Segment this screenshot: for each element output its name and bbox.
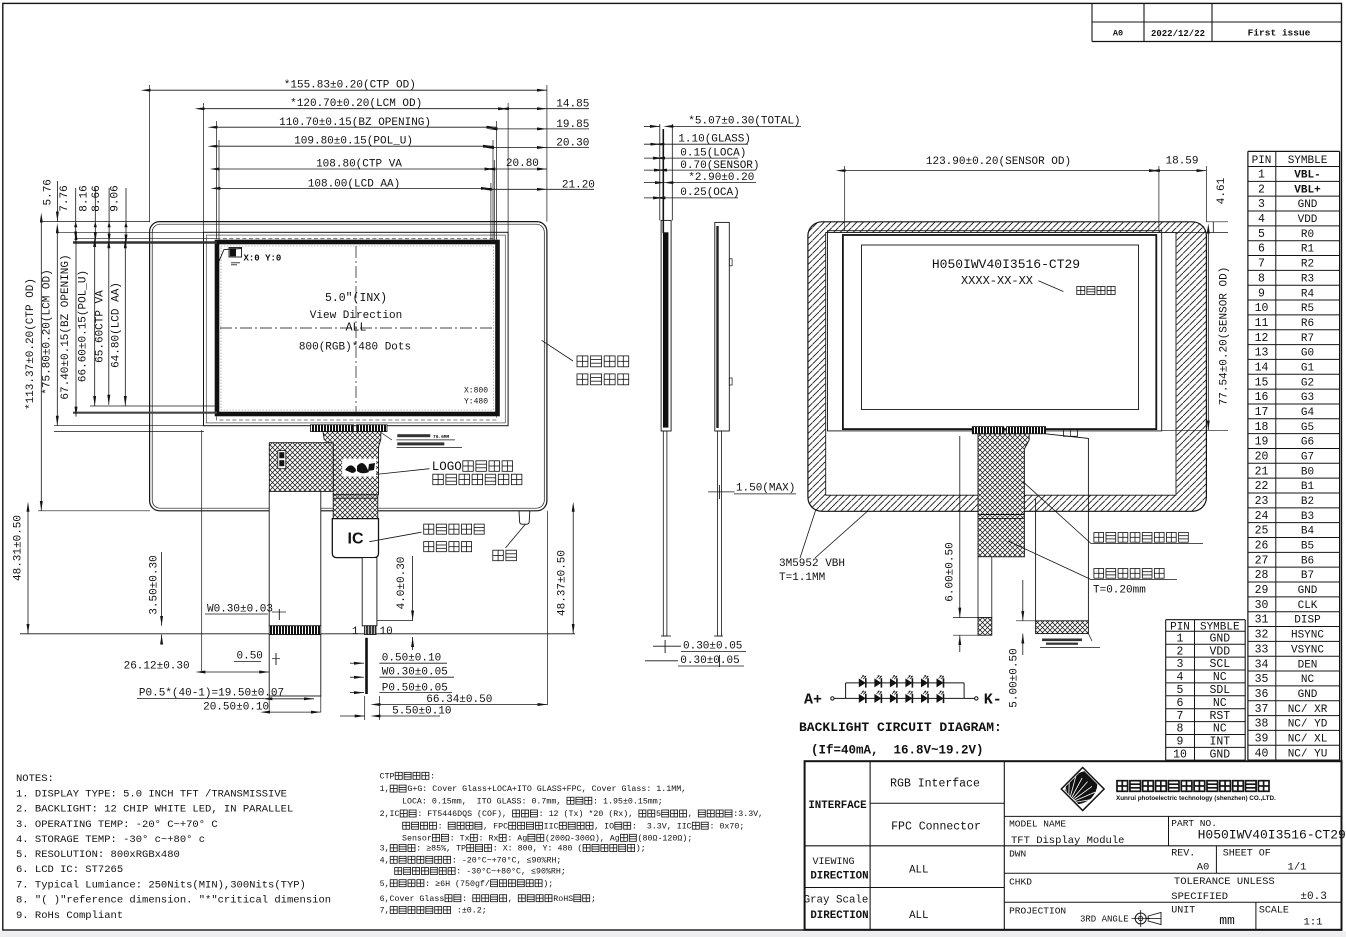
svg-text:IIC: IIC [544, 822, 559, 831]
svg-text:DWN: DWN [1009, 849, 1026, 860]
svg-text:*155.83±0.20(CTP OD): *155.83±0.20(CTP OD) [284, 80, 416, 92]
svg-text:R5: R5 [1301, 303, 1314, 315]
svg-text:4,: 4, [380, 856, 390, 865]
svg-text:6. LCD IC: ST7265: 6. LCD IC: ST7265 [16, 864, 123, 876]
svg-text:800(RGB)*480 Dots: 800(RGB)*480 Dots [299, 342, 411, 354]
svg-text:27: 27 [1255, 554, 1269, 567]
svg-text:G0: G0 [1301, 348, 1314, 360]
svg-text:GND: GND [1209, 632, 1230, 645]
svg-text:13: 13 [1255, 347, 1269, 360]
svg-text:20.50±0.10: 20.50±0.10 [203, 702, 269, 714]
svg-text:PROJECTION: PROJECTION [1009, 906, 1066, 917]
svg-text:G5: G5 [1301, 422, 1314, 434]
svg-text:NC: NC [1213, 697, 1227, 710]
svg-text:SPECIFIED: SPECIFIED [1171, 891, 1228, 903]
svg-text:5: 5 [656, 810, 661, 819]
svg-text:1. DISPLAY TYPE: 5.0 INCH TFT: 1. DISPLAY TYPE: 5.0 INCH TFT /TRANSMISS… [16, 789, 287, 801]
svg-text:HSYNC: HSYNC [1291, 630, 1324, 642]
svg-text:Sensor: Sensor [402, 834, 432, 843]
svg-text:(80Ω-120Ω);: (80Ω-120Ω); [638, 833, 693, 843]
svg-text:7. Typical Lumiance: 250Nits(M: 7. Typical Lumiance: 250Nits(MIN),300Nit… [16, 879, 306, 891]
svg-text:Y:480: Y:480 [464, 398, 488, 407]
svg-text:77.54±0.20(SENSOR OD): 77.54±0.20(SENSOR OD) [1219, 267, 1231, 406]
svg-text:CTP: CTP [380, 772, 395, 781]
svg-text:109.80±0.15(POL_U): 109.80±0.15(POL_U) [294, 136, 413, 148]
svg-text:GND: GND [1298, 689, 1318, 701]
svg-text:18.59: 18.59 [1166, 156, 1199, 168]
svg-text:38: 38 [1255, 718, 1269, 731]
svg-text:mm: mm [1219, 913, 1235, 928]
svg-text:MODEL NAME: MODEL NAME [1009, 819, 1066, 830]
svg-text:NC/ XR: NC/ XR [1288, 704, 1328, 716]
svg-text:H050IWV40I3516-CT29: H050IWV40I3516-CT29 [932, 257, 1080, 272]
svg-text:: 1.95±0.15mm;: : 1.95±0.15mm; [593, 797, 663, 806]
svg-text:2,IC: 2,IC [380, 810, 400, 819]
svg-text:1/1: 1/1 [1288, 861, 1307, 873]
svg-text:1.50(MAX): 1.50(MAX) [736, 483, 795, 495]
svg-text:INT: INT [1209, 736, 1230, 749]
svg-text:2. BACKLIGHT: 12 CHIP WHITE LE: 2. BACKLIGHT: 12 CHIP WHITE LED, IN PARA… [16, 804, 293, 816]
svg-text:B3: B3 [1301, 511, 1314, 523]
svg-text:VBL+: VBL+ [1294, 184, 1321, 196]
svg-text:18: 18 [1255, 421, 1269, 434]
svg-text:(200Ω-300Ω), Ag: (200Ω-300Ω), Ag [545, 833, 620, 843]
svg-text:3,: 3, [380, 845, 390, 854]
svg-text:40: 40 [1255, 747, 1269, 760]
svg-text:1: 1 [352, 626, 359, 638]
svg-text:G6: G6 [1301, 437, 1314, 449]
svg-text:: 3.3V, IIC: : 3.3V, IIC [632, 822, 692, 831]
svg-text:6: 6 [1177, 697, 1184, 710]
svg-text:);: ); [543, 879, 553, 889]
svg-text:: -30°C~+80°C, ≤90%RH;: : -30°C~+80°C, ≤90%RH; [456, 868, 566, 877]
svg-text:23: 23 [1255, 495, 1269, 508]
svg-text:RST: RST [1209, 710, 1230, 723]
svg-text:9. RoHs Compliant: 9. RoHs Compliant [16, 910, 123, 922]
svg-text:22: 22 [1255, 480, 1269, 493]
svg-text:G+G: Cover Glass+LOCA+ITO GLAS: G+G: Cover Glass+LOCA+ITO GLASS+FPC, Cov… [407, 784, 686, 794]
svg-text:2022/12/22: 2022/12/22 [1151, 29, 1205, 39]
svg-text:32: 32 [1255, 629, 1269, 642]
svg-text::: : [462, 895, 472, 904]
svg-text:8.66: 8.66 [91, 185, 103, 211]
svg-text:8: 8 [1177, 723, 1184, 736]
svg-text:R6: R6 [1301, 318, 1314, 330]
svg-text:R1: R1 [1301, 244, 1315, 256]
svg-text:NC: NC [1213, 723, 1227, 736]
svg-text:25: 25 [1255, 525, 1269, 538]
svg-text:3: 3 [1258, 198, 1265, 211]
svg-text:1,: 1, [380, 785, 390, 794]
svg-text:: 12 (Tx) *20 (Rx),: : 12 (Tx) *20 (Rx), [539, 809, 639, 819]
svg-text:W0.30±0.05: W0.30±0.05 [382, 667, 448, 679]
svg-text:A0: A0 [1113, 29, 1123, 39]
svg-text:NC: NC [1301, 674, 1315, 686]
svg-text:B1: B1 [1301, 481, 1315, 493]
svg-text:TFT Display Module: TFT Display Module [1011, 835, 1124, 847]
svg-text:NC/ XL: NC/ XL [1288, 733, 1328, 745]
svg-text:NC: NC [1213, 671, 1227, 684]
svg-text:NC/ YD: NC/ YD [1288, 719, 1328, 731]
svg-text:T=0.20mm: T=0.20mm [1093, 585, 1146, 597]
svg-text:20.80: 20.80 [506, 158, 539, 170]
svg-text:4.0±0.30: 4.0±0.30 [396, 557, 408, 610]
svg-text:8. "( )"reference dimension. ": 8. "( )"reference dimension. "*"critical… [16, 894, 331, 906]
svg-text:VSYNC: VSYNC [1291, 644, 1324, 656]
svg-text:K-: K- [984, 692, 1002, 709]
svg-text:4: 4 [1258, 213, 1265, 226]
svg-text:X:0 Y:0: X:0 Y:0 [244, 254, 282, 264]
svg-text:R4: R4 [1301, 288, 1315, 300]
svg-text:4: 4 [1177, 671, 1184, 684]
svg-text:0.30±0.05: 0.30±0.05 [680, 655, 739, 667]
svg-text:*120.70±0.20(LCM OD): *120.70±0.20(LCM OD) [290, 98, 422, 110]
svg-text:: ≥6H (750gf/: : ≥6H (750gf/ [425, 879, 490, 889]
svg-text:20: 20 [1255, 451, 1269, 464]
svg-text:CHKD: CHKD [1009, 877, 1032, 888]
svg-text:VIEWING: VIEWING [812, 857, 854, 868]
svg-text:ALL: ALL [909, 865, 928, 877]
svg-text:37: 37 [1255, 703, 1269, 716]
svg-text:*75.80±0.20(LCM OD): *75.80±0.20(LCM OD) [41, 269, 53, 394]
svg-text:GND: GND [1298, 199, 1318, 211]
svg-text:: Tx: : Tx [450, 834, 470, 843]
svg-text:: X: 800, Y: 480 (: : X: 800, Y: 480 ( [493, 844, 583, 854]
svg-text:,: , [688, 810, 698, 819]
svg-text:R0: R0 [1301, 229, 1314, 241]
svg-text:SYMBLE: SYMBLE [1288, 155, 1328, 167]
svg-text:B7: B7 [1301, 570, 1314, 582]
svg-text:6.00±0.50: 6.00±0.50 [944, 542, 956, 601]
svg-text:8.16: 8.16 [78, 185, 90, 211]
svg-text:10: 10 [1255, 302, 1269, 315]
svg-text:);: ); [636, 844, 646, 854]
svg-text:G4: G4 [1301, 407, 1315, 419]
svg-text:X:800: X:800 [464, 387, 488, 396]
svg-text:12: 12 [1255, 332, 1269, 345]
svg-text:3. OPERATING TEMP: -20° C~+70°: 3. OPERATING TEMP: -20° C~+70° C [16, 819, 218, 831]
svg-text:: Ag: : Ag [507, 834, 527, 843]
svg-text:VBL-: VBL- [1294, 170, 1320, 182]
svg-text:B4: B4 [1301, 526, 1315, 538]
svg-text:5: 5 [1177, 684, 1184, 697]
svg-text:B2: B2 [1301, 496, 1314, 508]
svg-text:(If=40mA, 16.8V~19.2V): (If=40mA, 16.8V~19.2V) [811, 744, 984, 758]
svg-text:7,: 7, [380, 907, 390, 916]
svg-text:2: 2 [1177, 645, 1184, 658]
svg-text:16: 16 [1255, 391, 1269, 404]
svg-text:7: 7 [1258, 258, 1265, 271]
svg-text:0.15(LOCA): 0.15(LOCA) [680, 148, 746, 160]
svg-text:R3: R3 [1301, 273, 1314, 285]
svg-text:30: 30 [1255, 599, 1269, 612]
svg-text:DIRECTION: DIRECTION [810, 910, 868, 922]
svg-text:21: 21 [1255, 465, 1269, 478]
svg-text:35: 35 [1255, 673, 1269, 686]
svg-text:5.00±0.50: 5.00±0.50 [1008, 648, 1020, 707]
svg-text:, IO: , IO [594, 822, 614, 831]
svg-text:GND: GND [1298, 585, 1318, 597]
svg-text:19: 19 [1255, 436, 1269, 449]
svg-text:4.61: 4.61 [1216, 177, 1228, 204]
svg-text:Xunrui photoelectric technolog: Xunrui photoelectric technology (shenzhe… [1116, 795, 1276, 802]
svg-text:33: 33 [1255, 643, 1269, 656]
svg-text:36: 36 [1255, 688, 1269, 701]
svg-text::: : [438, 822, 448, 831]
svg-text:5. RESOLUTION: 800xRGBx480: 5. RESOLUTION: 800xRGBx480 [16, 849, 180, 861]
svg-text:34: 34 [1255, 658, 1269, 671]
svg-text:TOLERANCE UNLESS: TOLERANCE UNLESS [1174, 876, 1275, 888]
svg-text:48.37±0.50: 48.37±0.50 [557, 550, 569, 616]
svg-text:3RD ANGLE: 3RD ANGLE [1080, 915, 1129, 925]
svg-text:NOTES:: NOTES: [16, 773, 54, 785]
svg-text:INTERFACE: INTERFACE [808, 800, 867, 812]
svg-text:66.60±0.15(POL_U): 66.60±0.15(POL_U) [77, 270, 89, 382]
svg-text:6: 6 [1258, 243, 1265, 256]
svg-text:A0: A0 [1197, 861, 1210, 873]
svg-text:R7: R7 [1301, 333, 1314, 345]
svg-text:10: 10 [380, 626, 393, 638]
svg-text:9: 9 [1177, 736, 1184, 749]
svg-text:14: 14 [1255, 361, 1269, 374]
svg-text:UNIT: UNIT [1171, 906, 1195, 917]
svg-text:IC: IC [348, 531, 364, 548]
svg-text:: 0x70;: : 0x70; [709, 822, 744, 831]
svg-text:VDD: VDD [1298, 214, 1318, 226]
svg-text:H050IWV40I3516-CT29: H050IWV40I3516-CT29 [1198, 828, 1346, 843]
svg-text:28: 28 [1255, 569, 1269, 582]
svg-text:, FPC: , FPC [483, 822, 508, 831]
svg-text:39: 39 [1255, 732, 1269, 745]
svg-text:BACKLIGHT CIRCUIT DIAGRAM:: BACKLIGHT CIRCUIT DIAGRAM: [799, 720, 1002, 735]
svg-text::: : [430, 772, 435, 781]
svg-text:R2: R2 [1301, 259, 1314, 271]
svg-text:SCALE: SCALE [1259, 906, 1289, 917]
svg-text:View Direction: View Direction [310, 310, 402, 322]
svg-text:26: 26 [1255, 540, 1269, 553]
svg-text:XXXX-XX-XX: XXXX-XX-XX [961, 274, 1033, 288]
svg-text:1: 1 [1177, 632, 1184, 645]
svg-text:NC/ YU: NC/ YU [1288, 748, 1328, 760]
svg-text:G1: G1 [1301, 362, 1315, 374]
svg-text:3: 3 [1177, 658, 1184, 671]
svg-text:6,Cover Glass: 6,Cover Glass [380, 894, 445, 904]
svg-text:DIRECTION: DIRECTION [810, 871, 868, 883]
svg-text:1:1: 1:1 [1304, 917, 1323, 929]
svg-text:ALL: ALL [346, 322, 367, 335]
svg-text:*5.07±0.30(TOTAL): *5.07±0.30(TOTAL) [688, 116, 800, 128]
svg-text:76.6MM: 76.6MM [433, 434, 450, 440]
svg-text::3.3V,: :3.3V, [733, 810, 763, 819]
svg-text:*2.90±0.20: *2.90±0.20 [688, 172, 754, 184]
svg-text:10: 10 [1173, 749, 1187, 762]
svg-text:PIN: PIN [1252, 155, 1272, 167]
svg-text:SCL: SCL [1209, 658, 1230, 671]
svg-text:*113.37±0.20(CTP OD): *113.37±0.20(CTP OD) [25, 278, 37, 410]
svg-text:9: 9 [1258, 287, 1265, 300]
svg-text:B0: B0 [1301, 466, 1314, 478]
svg-text:RoHS: RoHS [553, 895, 573, 904]
svg-text:B5: B5 [1301, 541, 1314, 553]
svg-text:DISP: DISP [1294, 615, 1321, 627]
svg-text::±0.2;: :±0.2; [452, 907, 487, 916]
svg-text:RGB Interface: RGB Interface [890, 778, 980, 791]
svg-text:5,: 5, [380, 880, 390, 889]
svg-text:4. STORAGE TEMP: -30° c~+80° c: 4. STORAGE TEMP: -30° c~+80° c [16, 834, 205, 846]
svg-text:0.30±0.05: 0.30±0.05 [683, 641, 742, 653]
svg-text:8: 8 [1258, 272, 1265, 285]
svg-text:0.50±0.10: 0.50±0.10 [382, 653, 441, 665]
svg-text:: FT5446DQS (COF),: : FT5446DQS (COF), [417, 809, 512, 819]
svg-text:67.40±0.15(BZ OPENING): 67.40±0.15(BZ OPENING) [60, 254, 72, 399]
svg-text:0.50: 0.50 [237, 651, 263, 663]
svg-text:1.10(GLASS): 1.10(GLASS) [678, 134, 751, 146]
svg-text:FPC Connector: FPC Connector [891, 821, 981, 834]
svg-text:G2: G2 [1301, 377, 1314, 389]
svg-text:15: 15 [1255, 376, 1269, 389]
svg-text:1: 1 [1258, 169, 1265, 182]
svg-text:REV.: REV. [1171, 849, 1195, 860]
svg-text:108.80(CTP VA: 108.80(CTP VA [316, 158, 402, 170]
svg-text:9.06: 9.06 [110, 185, 122, 211]
svg-text:ALL: ALL [909, 910, 928, 922]
svg-text:;: ; [591, 895, 596, 904]
svg-text:G3: G3 [1301, 392, 1314, 404]
svg-text:17: 17 [1255, 406, 1269, 419]
svg-text:CLK: CLK [1298, 600, 1318, 612]
svg-text:26.12±0.30: 26.12±0.30 [124, 661, 190, 673]
svg-text:24: 24 [1255, 510, 1269, 523]
svg-text:3.50±0.30: 3.50±0.30 [148, 555, 160, 614]
svg-text:LOCA: 0.15mm, ITO GLASS: 0.7m: LOCA: 0.15mm, ITO GLASS: 0.7mm, [402, 797, 566, 806]
svg-text:A+: A+ [804, 692, 822, 709]
svg-text:7.76: 7.76 [59, 185, 71, 211]
svg-text:31: 31 [1255, 614, 1269, 627]
svg-text:3M5952 VBH: 3M5952 VBH [779, 558, 845, 570]
svg-text:GND: GND [1209, 749, 1230, 762]
svg-text:DEN: DEN [1298, 659, 1318, 671]
svg-text:65.60CTP VA: 65.60CTP VA [95, 290, 107, 363]
svg-text:5.0″(INX): 5.0″(INX) [325, 292, 387, 305]
svg-text:11: 11 [1255, 317, 1269, 330]
svg-text:48.31±0.50: 48.31±0.50 [13, 515, 25, 581]
svg-text:G7: G7 [1301, 452, 1314, 464]
svg-text:LOGO: LOGO [432, 460, 462, 474]
svg-text:P0.5*(40-1)=19.50±0.07: P0.5*(40-1)=19.50±0.07 [139, 688, 284, 700]
svg-text:Gray Scale: Gray Scale [804, 895, 869, 907]
svg-text:SDL: SDL [1209, 684, 1230, 697]
svg-text:5: 5 [1258, 228, 1265, 241]
svg-text:123.90±0.20(SENSOR OD): 123.90±0.20(SENSOR OD) [926, 156, 1071, 168]
svg-text:VDD: VDD [1209, 645, 1230, 658]
svg-text:: Rx: : Rx [479, 834, 499, 843]
svg-text:SHEET OF: SHEET OF [1223, 849, 1271, 860]
svg-text:0.25(OCA): 0.25(OCA) [680, 187, 739, 199]
svg-text:B6: B6 [1301, 555, 1314, 567]
svg-text:±0.3: ±0.3 [1300, 891, 1326, 903]
svg-text:First issue: First issue [1248, 28, 1311, 39]
svg-text:T=1.1MM: T=1.1MM [779, 572, 825, 584]
svg-text:29: 29 [1255, 584, 1269, 597]
svg-text:64.80(LCD AA): 64.80(LCD AA) [111, 282, 123, 368]
svg-text:2: 2 [1258, 183, 1265, 196]
svg-text:: -20°C~+70°C, ≤90%RH;: : -20°C~+70°C, ≤90%RH; [452, 856, 562, 865]
svg-text:7: 7 [1177, 710, 1184, 723]
svg-text:: ≥85%, TP: : ≥85%, TP [416, 845, 466, 854]
svg-text:5.76: 5.76 [42, 179, 54, 205]
svg-text:,: , [508, 895, 518, 904]
